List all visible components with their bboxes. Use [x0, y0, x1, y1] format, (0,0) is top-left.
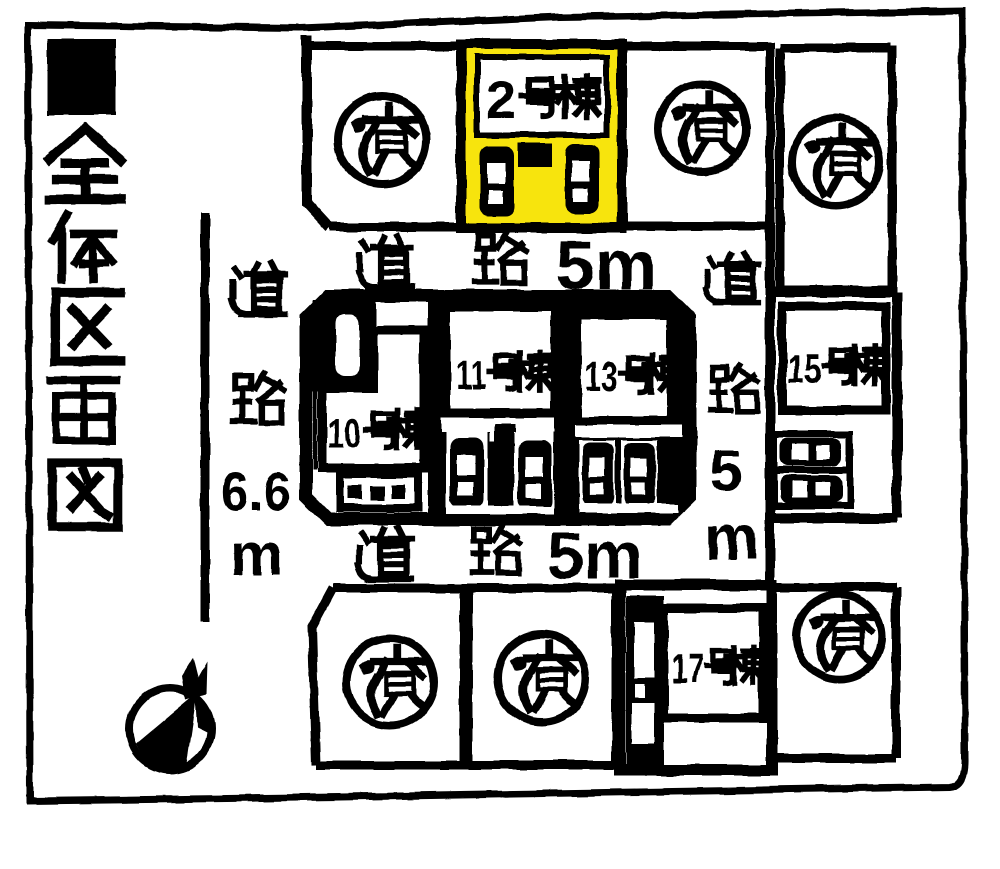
svg-text:13: 13	[584, 353, 618, 400]
svg-text:m: m	[230, 521, 283, 588]
svg-text:2: 2	[486, 70, 516, 130]
svg-text:m: m	[704, 504, 759, 573]
svg-text:11: 11	[456, 351, 486, 398]
svg-text:17: 17	[672, 645, 704, 692]
svg-text:6.6: 6.6	[221, 462, 291, 522]
svg-text:15: 15	[787, 345, 821, 392]
svg-text:5: 5	[710, 439, 742, 504]
svg-text:10: 10	[327, 412, 361, 456]
